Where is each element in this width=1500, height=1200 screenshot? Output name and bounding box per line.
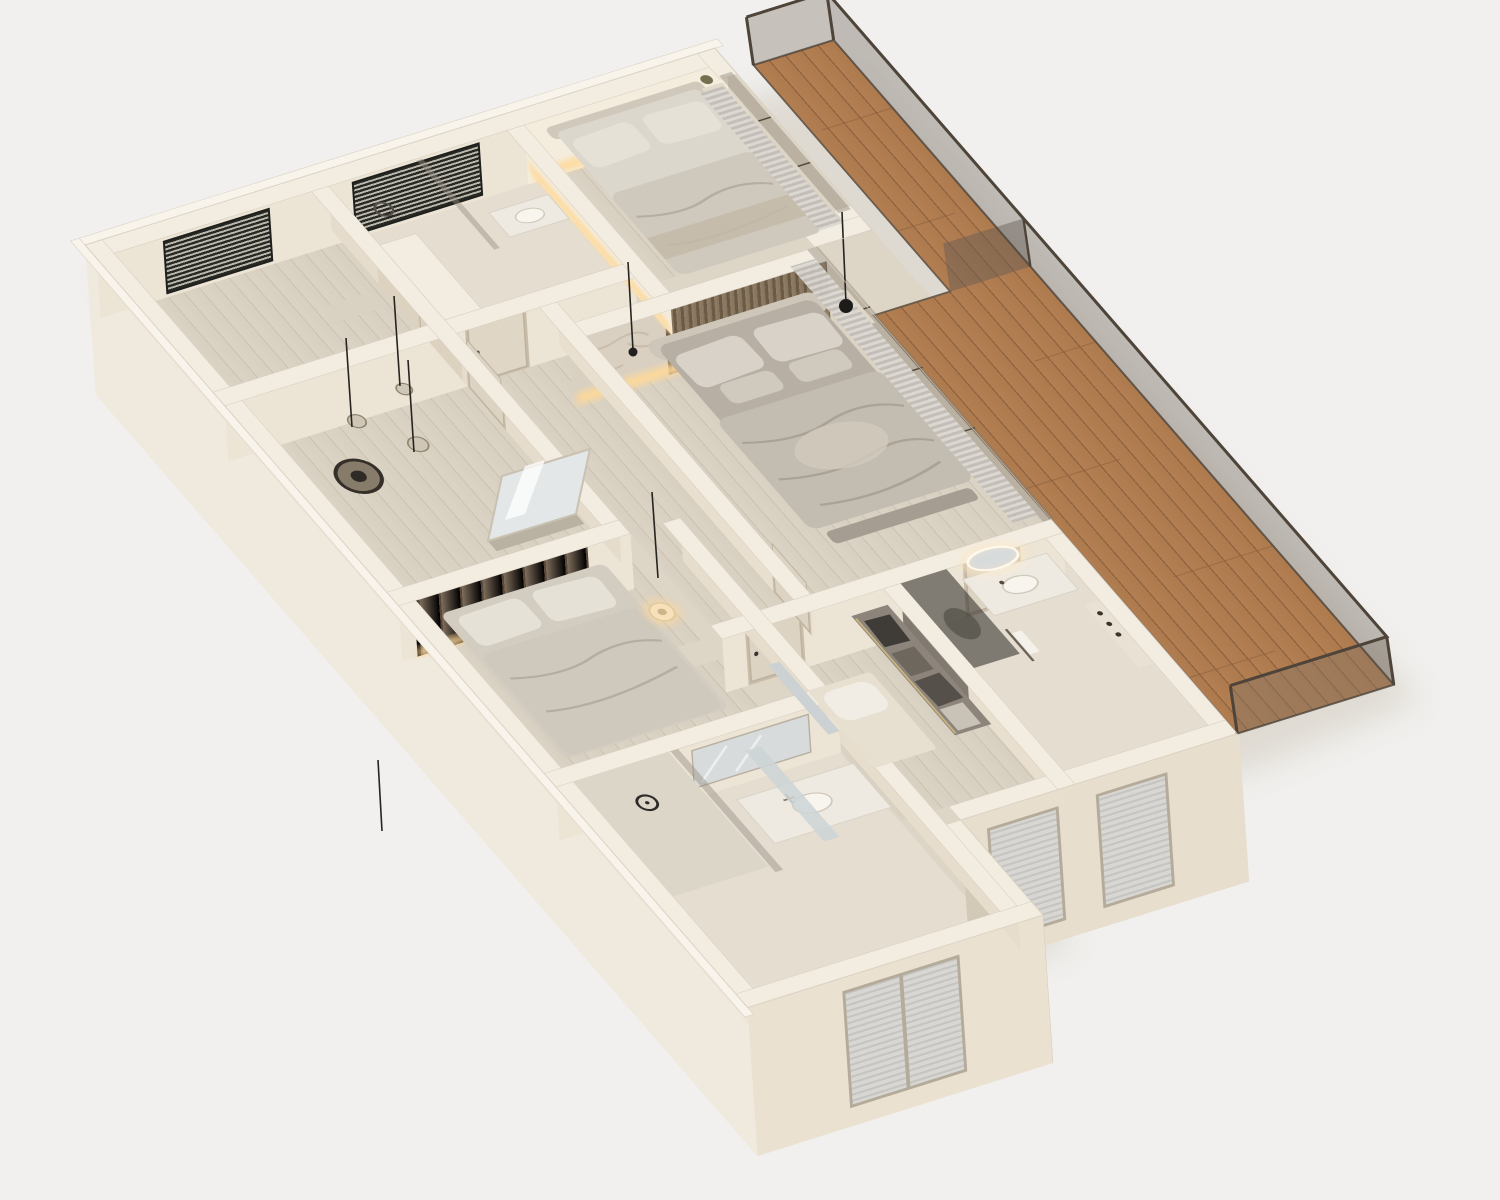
floorplan-svg — [0, 0, 1500, 1200]
master-nightstand-lamp — [839, 299, 853, 313]
floorplan-render — [0, 0, 1500, 1200]
floor-lamp-head — [629, 348, 638, 357]
se-window-2 — [1097, 774, 1173, 906]
